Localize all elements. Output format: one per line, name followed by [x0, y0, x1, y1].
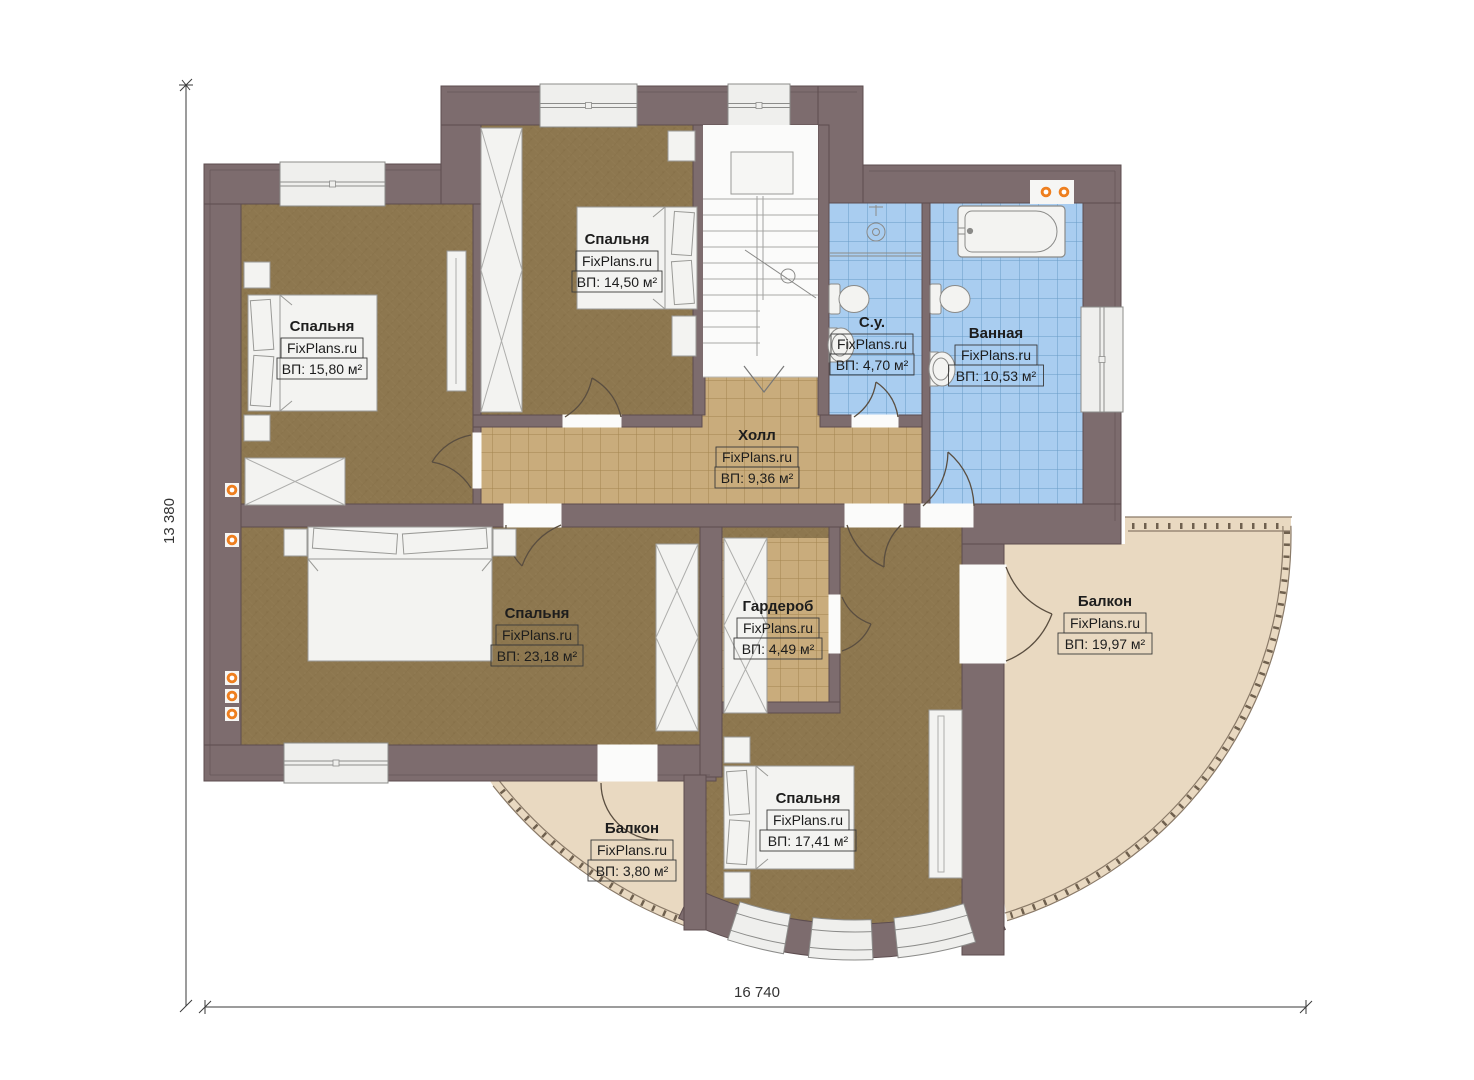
svg-text:FixPlans.ru: FixPlans.ru: [837, 336, 907, 352]
svg-text:FixPlans.ru: FixPlans.ru: [582, 253, 652, 269]
svg-text:ВП: 4,49 м²: ВП: 4,49 м²: [742, 641, 815, 657]
svg-text:ВП: 4,70 м²: ВП: 4,70 м²: [836, 357, 909, 373]
svg-text:Спальня: Спальня: [585, 231, 650, 248]
svg-text:FixPlans.ru: FixPlans.ru: [287, 340, 357, 356]
svg-text:Спальня: Спальня: [776, 790, 841, 807]
svg-text:ВП: 19,97 м²: ВП: 19,97 м²: [1065, 636, 1146, 652]
svg-text:Холл: Холл: [738, 427, 776, 444]
svg-text:FixPlans.ru: FixPlans.ru: [743, 620, 813, 636]
svg-text:Балкон: Балкон: [1078, 593, 1132, 610]
svg-text:FixPlans.ru: FixPlans.ru: [502, 627, 572, 643]
svg-text:С.у.: С.у.: [859, 314, 885, 331]
svg-text:FixPlans.ru: FixPlans.ru: [1070, 615, 1140, 631]
svg-text:ВП: 3,80 м²: ВП: 3,80 м²: [596, 863, 669, 879]
svg-text:ВП: 9,36 м²: ВП: 9,36 м²: [721, 470, 794, 486]
svg-text:Гардероб: Гардероб: [743, 598, 814, 615]
svg-text:ВП: 14,50 м²: ВП: 14,50 м²: [577, 274, 658, 290]
svg-text:ВП: 10,53 м²: ВП: 10,53 м²: [956, 368, 1037, 384]
svg-text:Спальня: Спальня: [505, 605, 570, 622]
svg-text:FixPlans.ru: FixPlans.ru: [773, 812, 843, 828]
svg-text:FixPlans.ru: FixPlans.ru: [722, 449, 792, 465]
svg-text:ВП: 17,41 м²: ВП: 17,41 м²: [768, 833, 849, 849]
svg-text:Спальня: Спальня: [290, 318, 355, 335]
svg-text:13 380: 13 380: [161, 498, 178, 544]
svg-text:Ванная: Ванная: [969, 325, 1023, 342]
svg-text:ВП: 15,80 м²: ВП: 15,80 м²: [282, 361, 363, 377]
svg-text:Балкон: Балкон: [605, 820, 659, 837]
svg-text:16 740: 16 740: [734, 984, 780, 1001]
svg-text:ВП: 23,18 м²: ВП: 23,18 м²: [497, 648, 578, 664]
svg-text:FixPlans.ru: FixPlans.ru: [597, 842, 667, 858]
svg-text:FixPlans.ru: FixPlans.ru: [961, 347, 1031, 363]
